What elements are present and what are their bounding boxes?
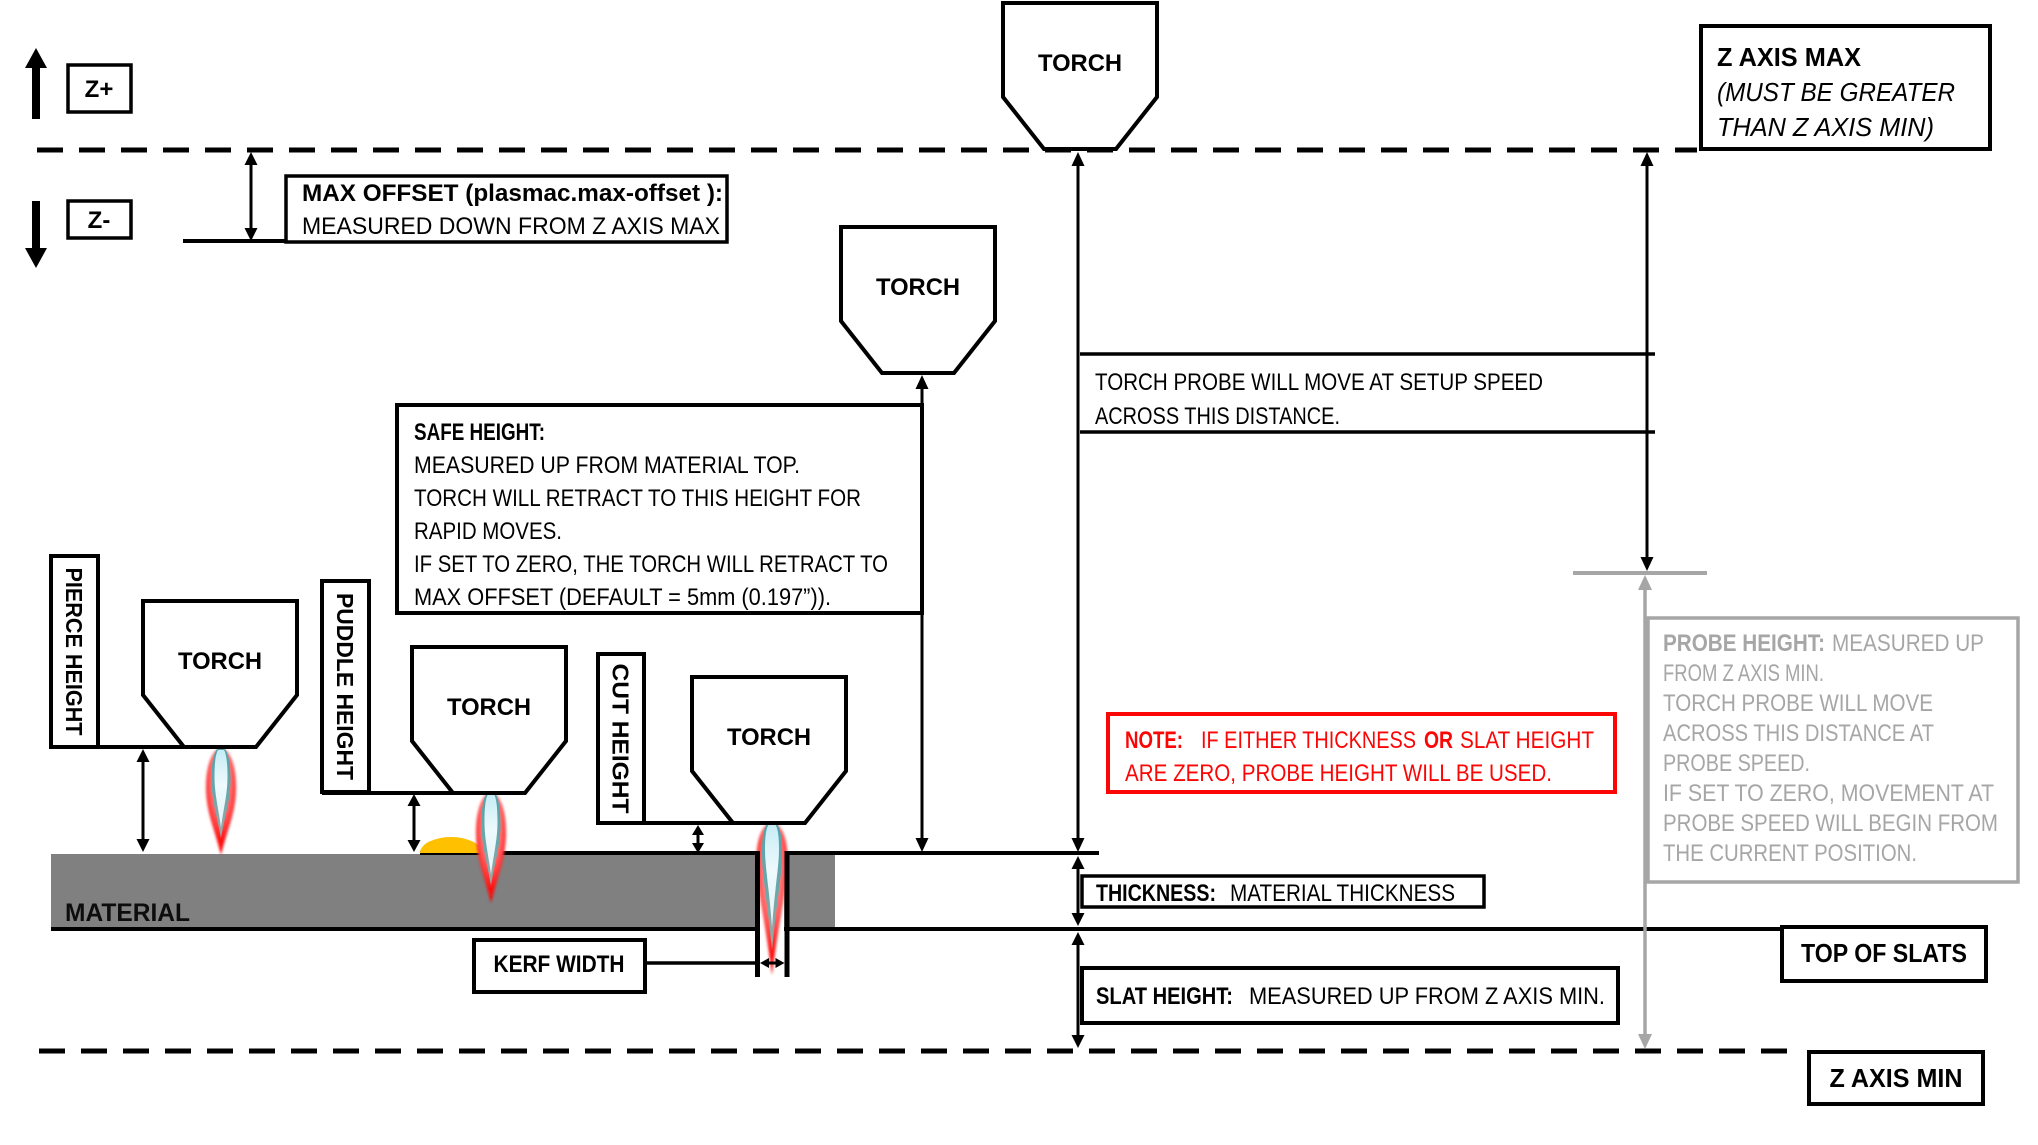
svg-text:Z AXIS MAX: Z AXIS MAX: [1717, 42, 1862, 72]
svg-text:MATERIAL THICKNESS: MATERIAL THICKNESS: [1230, 880, 1455, 907]
svg-text:PROBE HEIGHT:: PROBE HEIGHT:: [1663, 630, 1825, 657]
svg-text:NOTE:: NOTE:: [1125, 727, 1183, 754]
svg-text:(MUST BE GREATER: (MUST BE GREATER: [1717, 77, 1955, 107]
svg-text:MEASURED UP FROM MATERIAL TOP.: MEASURED UP FROM MATERIAL TOP.: [414, 452, 800, 479]
svg-text:MATERIAL: MATERIAL: [65, 899, 190, 927]
svg-text:RAPID MOVES.: RAPID MOVES.: [414, 518, 562, 545]
svg-text:CUT HEIGHT: CUT HEIGHT: [608, 664, 634, 814]
svg-text:KERF WIDTH: KERF WIDTH: [494, 951, 625, 978]
svg-text:ARE ZERO, PROBE HEIGHT WILL BE: ARE ZERO, PROBE HEIGHT WILL BE USED.: [1125, 760, 1552, 787]
svg-text:MEASURED UP: MEASURED UP: [1832, 630, 1984, 657]
svg-text:TORCH PROBE WILL MOVE AT SETUP: TORCH PROBE WILL MOVE AT SETUP SPEED: [1095, 369, 1543, 396]
svg-text:MEASURED DOWN FROM Z AXIS MAX: MEASURED DOWN FROM Z AXIS MAX: [302, 213, 720, 240]
svg-text:SLAT HEIGHT: SLAT HEIGHT: [1460, 727, 1594, 754]
svg-text:THAN Z AXIS MIN): THAN Z AXIS MIN): [1717, 112, 1934, 142]
svg-text:TORCH: TORCH: [1038, 50, 1122, 77]
svg-text:PUDDLE HEIGHT: PUDDLE HEIGHT: [332, 593, 358, 780]
svg-text:Z AXIS MIN: Z AXIS MIN: [1830, 1063, 1963, 1093]
svg-text:PROBE SPEED.: PROBE SPEED.: [1663, 750, 1810, 777]
svg-text:PROBE SPEED WILL BEGIN FROM: PROBE SPEED WILL BEGIN FROM: [1663, 810, 1998, 837]
svg-text:MAX OFFSET (DEFAULT = 5mm (0.1: MAX OFFSET (DEFAULT = 5mm (0.197”)).: [414, 584, 831, 611]
svg-text:MEASURED UP FROM Z AXIS MIN.: MEASURED UP FROM Z AXIS MIN.: [1249, 983, 1605, 1010]
svg-text:MAX OFFSET (plasmac.max-offset: MAX OFFSET (plasmac.max-offset ):: [302, 180, 723, 207]
svg-text:SAFE HEIGHT:: SAFE HEIGHT:: [414, 419, 545, 446]
svg-text:TORCH: TORCH: [727, 724, 811, 751]
svg-text:THE CURRENT POSITION.: THE CURRENT POSITION.: [1663, 840, 1917, 867]
svg-text:THICKNESS:: THICKNESS:: [1096, 880, 1216, 907]
svg-text:TORCH PROBE WILL MOVE: TORCH PROBE WILL MOVE: [1663, 690, 1933, 717]
svg-text:TORCH: TORCH: [447, 694, 531, 721]
svg-text:Z-: Z-: [88, 207, 111, 234]
svg-text:PIERCE HEIGHT: PIERCE HEIGHT: [61, 568, 87, 736]
svg-text:FROM Z AXIS MIN.: FROM Z AXIS MIN.: [1663, 660, 1824, 687]
svg-text:TORCH WILL RETRACT TO THIS HEI: TORCH WILL RETRACT TO THIS HEIGHT FOR: [414, 485, 861, 512]
svg-text:TORCH: TORCH: [876, 274, 960, 301]
svg-text:IF SET TO ZERO, MOVEMENT AT: IF SET TO ZERO, MOVEMENT AT: [1663, 780, 1994, 807]
svg-text:TOP OF SLATS: TOP OF SLATS: [1801, 938, 1967, 968]
svg-text:ACROSS THIS DISTANCE AT: ACROSS THIS DISTANCE AT: [1663, 720, 1934, 747]
svg-text:ACROSS THIS DISTANCE.: ACROSS THIS DISTANCE.: [1095, 403, 1340, 430]
svg-text:SLAT HEIGHT:: SLAT HEIGHT:: [1096, 983, 1233, 1010]
svg-text:OR: OR: [1424, 727, 1453, 754]
svg-text:IF SET TO ZERO, THE TORCH WILL: IF SET TO ZERO, THE TORCH WILL RETRACT T…: [414, 551, 888, 578]
svg-text:Z+: Z+: [85, 76, 114, 103]
svg-text:TORCH: TORCH: [178, 648, 262, 675]
svg-text:IF EITHER THICKNESS: IF EITHER THICKNESS: [1201, 727, 1416, 754]
